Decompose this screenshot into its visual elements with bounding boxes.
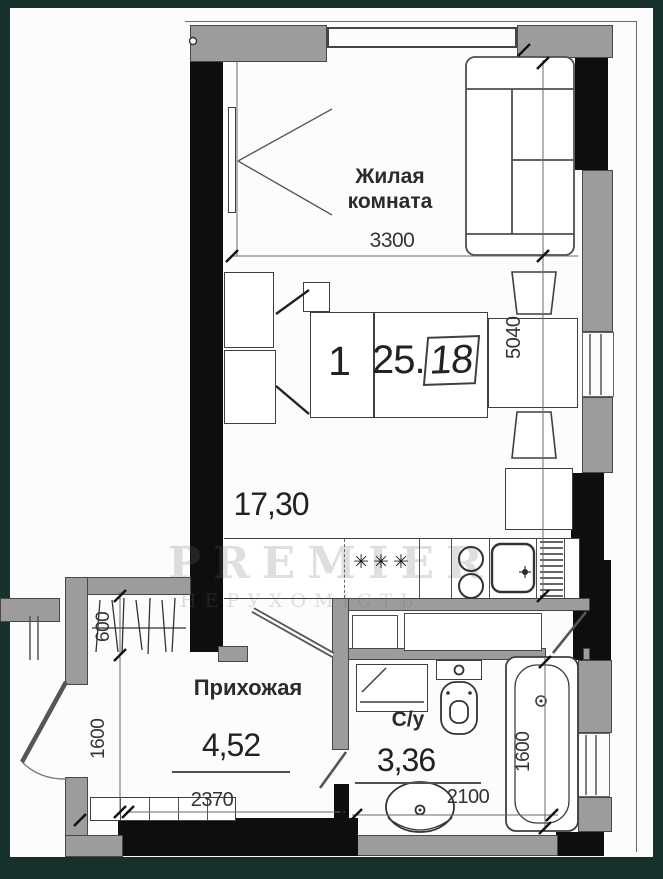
- tv-cone: [238, 109, 332, 215]
- studio-door-leaf: [253, 610, 333, 655]
- kitchen-sink-icon: [492, 544, 534, 592]
- hallway-label: Прихожая: [176, 676, 320, 700]
- hallway-area-value: 4,52: [178, 727, 284, 764]
- entrance-door: [22, 682, 68, 779]
- living-area-value: 17,30: [215, 486, 327, 523]
- stamp-area-frac: 18: [422, 335, 479, 386]
- hallway-area-underline: [172, 771, 290, 773]
- hob-burners-icon: ✳✳✳: [352, 551, 414, 574]
- dim-1600-tub: 1600: [513, 712, 539, 792]
- living-room-label-1: Жилая: [338, 165, 442, 188]
- bath-top-door-leaf: [553, 612, 586, 653]
- bathroom-area-value: 3,36: [360, 742, 452, 779]
- stove-icon: [459, 547, 483, 598]
- bathroom-area-underline: [355, 782, 481, 784]
- wall-anchor-circle: [190, 38, 197, 45]
- dim-5040: 5040: [503, 300, 531, 376]
- cabinet-door-lines: [276, 290, 309, 414]
- dim-600: 600: [93, 598, 117, 656]
- sofa: [466, 57, 574, 255]
- dim-3300: 3300: [352, 229, 432, 253]
- living-room-label-2: комната: [330, 190, 450, 213]
- hall-bath-door-leaf: [320, 752, 346, 788]
- stamp-rooms: 1: [316, 338, 362, 385]
- floor-plan: PREMIER НЕРУХОМІСТЬ: [0, 0, 663, 879]
- dim-1600-hall: 1600: [88, 698, 112, 780]
- toilet-icon: [441, 666, 477, 735]
- bathroom-label: С/у: [380, 708, 436, 731]
- dim-2100: 2100: [434, 786, 502, 809]
- washing-machine-lines: [360, 668, 424, 702]
- stamp-area: 25.18: [372, 336, 488, 385]
- dim-2370: 2370: [168, 789, 256, 812]
- stamp-area-main: 25.: [372, 338, 425, 382]
